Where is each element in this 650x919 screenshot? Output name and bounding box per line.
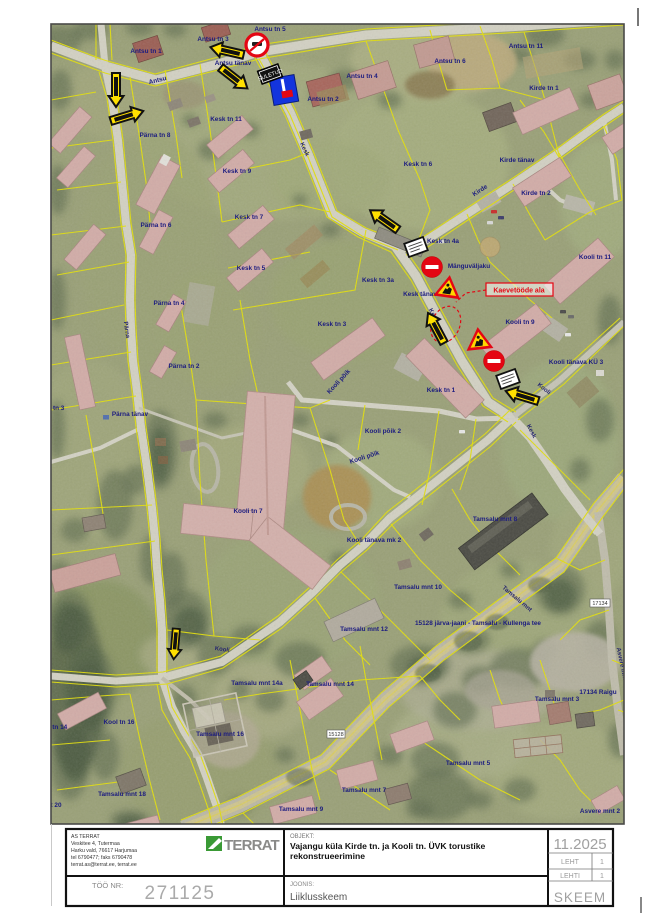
svg-text:Antsu tn 6: Antsu tn 6	[434, 58, 466, 65]
svg-text:Harku vald, 76617 Harjumaa: Harku vald, 76617 Harjumaa	[71, 848, 137, 854]
svg-text:AS TERRAT: AS TERRAT	[71, 834, 100, 840]
svg-text:LEHT: LEHT	[561, 859, 580, 866]
svg-text:SKEEM: SKEEM	[554, 890, 606, 905]
svg-text:Kesk tn 9: Kesk tn 9	[223, 168, 252, 175]
svg-text:Kesk tn 6: Kesk tn 6	[404, 161, 433, 168]
svg-text:terrat.as@terrat.ee, terrat.ee: terrat.as@terrat.ee, terrat.ee	[71, 862, 137, 868]
svg-text:Kesk tn 3: Kesk tn 3	[318, 321, 347, 328]
svg-text:Tamsalu mnt 3: Tamsalu mnt 3	[535, 696, 580, 703]
svg-text:Tamsalu mnt 14a: Tamsalu mnt 14a	[231, 680, 283, 687]
svg-text:Pärna tn 6: Pärna tn 6	[141, 222, 172, 229]
svg-text:Kooli põik 2: Kooli põik 2	[365, 428, 402, 435]
svg-text:Pärna tn 2: Pärna tn 2	[169, 363, 200, 370]
svg-text:271125: 271125	[145, 883, 216, 904]
svg-text:Tamsalu mnt 14: Tamsalu mnt 14	[306, 681, 354, 688]
svg-text:Kool tn 16: Kool tn 16	[104, 719, 135, 726]
svg-text:Pärna tänav: Pärna tänav	[112, 411, 149, 418]
svg-text:Kesk tn 3a: Kesk tn 3a	[362, 277, 394, 284]
svg-text:JOONIS:: JOONIS:	[290, 882, 314, 888]
svg-text:Kooli tn 9: Kooli tn 9	[505, 319, 535, 326]
svg-text:Antsu tn 5: Antsu tn 5	[254, 26, 286, 33]
svg-text:Tamsalu mnt 10: Tamsalu mnt 10	[394, 584, 442, 591]
svg-text:Pärna tn 8: Pärna tn 8	[140, 132, 171, 139]
svg-text:rekonstrueerimine: rekonstrueerimine	[290, 851, 365, 861]
svg-text:Kooli tn 11: Kooli tn 11	[579, 254, 612, 261]
svg-text:Kooli tn 7: Kooli tn 7	[233, 508, 263, 515]
svg-text:Pärna tn 4: Pärna tn 4	[154, 300, 185, 307]
svg-text:Kesk tn 11: Kesk tn 11	[210, 116, 242, 123]
svg-text:Mänguväljaku: Mänguväljaku	[448, 263, 490, 270]
svg-text:OBJEKT:: OBJEKT:	[290, 834, 315, 840]
svg-text:Kirde tänav: Kirde tänav	[500, 157, 535, 164]
svg-text:LEHTI: LEHTI	[560, 873, 580, 880]
svg-text:Kirde tn 1: Kirde tn 1	[529, 85, 559, 92]
svg-text:Tamsalu mnt 8: Tamsalu mnt 8	[473, 516, 518, 523]
svg-text:Liiklusskeem: Liiklusskeem	[290, 892, 347, 903]
svg-text:Kirde tn 2: Kirde tn 2	[521, 190, 551, 197]
svg-text:tel 6790477; faks 6790478: tel 6790477; faks 6790478	[71, 855, 132, 861]
svg-text:Kaevetööde ala: Kaevetööde ala	[493, 288, 544, 295]
svg-text:Kesk tn 7: Kesk tn 7	[235, 214, 264, 221]
svg-text:17134: 17134	[592, 601, 607, 607]
svg-text:Antsu tn 4: Antsu tn 4	[346, 73, 378, 80]
svg-text:Kooli tänava mk 2: Kooli tänava mk 2	[347, 537, 402, 544]
svg-text:Tamsalu mnt 7: Tamsalu mnt 7	[342, 787, 387, 794]
svg-text:Tamsalu mnt 12: Tamsalu mnt 12	[340, 626, 388, 633]
svg-text:Kesk tn 5: Kesk tn 5	[237, 265, 266, 272]
svg-text:TERRAT: TERRAT	[224, 837, 280, 854]
svg-text:Tamsalu mnt 5: Tamsalu mnt 5	[446, 760, 491, 767]
svg-text:t 20: t 20	[50, 802, 61, 809]
svg-text:Kesk tn 1: Kesk tn 1	[427, 387, 456, 394]
svg-text:17134 Raigu: 17134 Raigu	[579, 689, 616, 696]
svg-text:Asvere mnt 2: Asvere mnt 2	[580, 808, 621, 815]
svg-text:Veskitee 4, Tutermaa: Veskitee 4, Tutermaa	[71, 841, 120, 847]
svg-text:Vajangu küla Kirde tn. ja Kool: Vajangu küla Kirde tn. ja Kooli tn. ÜVK …	[290, 841, 486, 851]
svg-text:Kesk tn 4a: Kesk tn 4a	[427, 238, 459, 245]
svg-text:Antsu tn 2: Antsu tn 2	[307, 96, 339, 103]
svg-text:11.2025: 11.2025	[553, 836, 606, 853]
svg-text:TÖÖ NR:: TÖÖ NR:	[92, 881, 123, 890]
svg-text:Antsu tn 1: Antsu tn 1	[130, 48, 162, 55]
svg-text:Tamsalu mnt 18: Tamsalu mnt 18	[98, 791, 146, 798]
svg-text:1: 1	[600, 873, 604, 880]
svg-text:1: 1	[600, 859, 604, 866]
svg-text:Tamsalu mnt 9: Tamsalu mnt 9	[279, 806, 324, 813]
svg-text:15128: 15128	[328, 732, 343, 738]
svg-text:Kooli tänava KÜ 3: Kooli tänava KÜ 3	[549, 357, 604, 366]
svg-text:Antsu tn 11: Antsu tn 11	[509, 43, 544, 50]
svg-text:Kesk tänav: Kesk tänav	[403, 291, 437, 298]
svg-text:Antsu tn 3: Antsu tn 3	[197, 36, 229, 43]
svg-text:15128 järva-jaani - Tamsalu -: 15128 järva-jaani - Tamsalu - Kullenga t…	[415, 620, 541, 627]
svg-text:Tamsalu mnt 16: Tamsalu mnt 16	[196, 731, 244, 738]
svg-text:Antsu tänav: Antsu tänav	[215, 60, 252, 67]
